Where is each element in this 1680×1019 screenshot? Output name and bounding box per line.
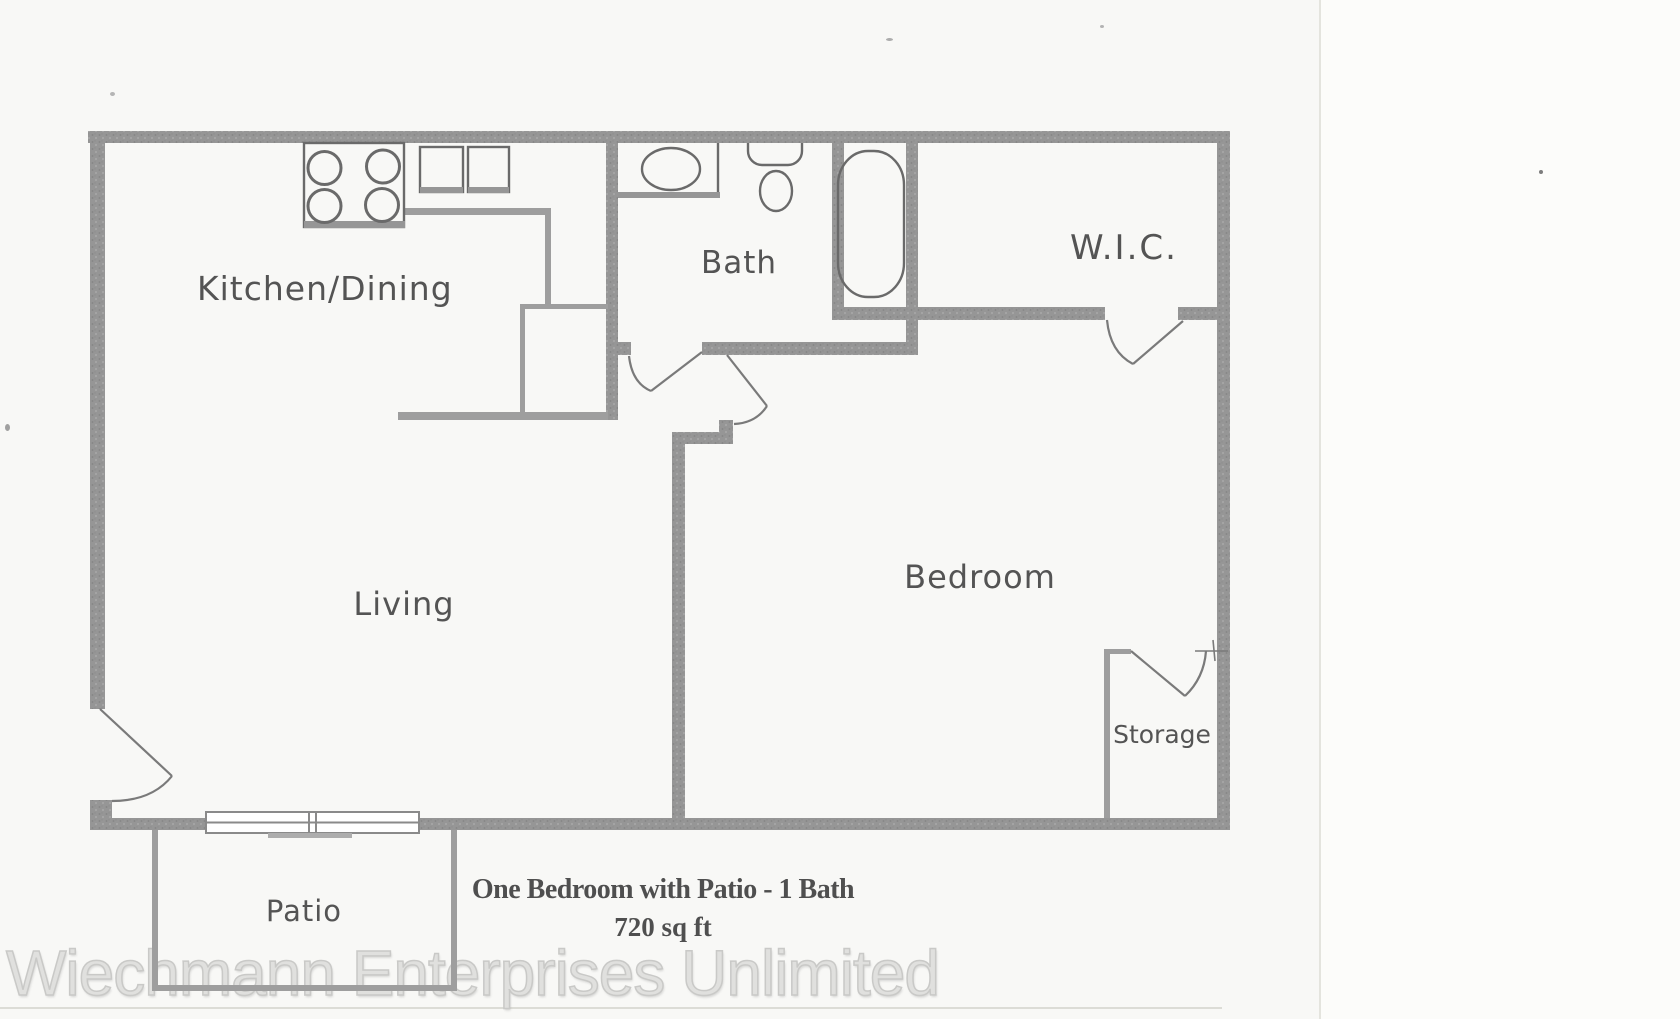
- wall-left: [90, 131, 105, 709]
- wall-bedroom-west: [672, 432, 685, 818]
- wall-storage-top: [1104, 649, 1131, 654]
- scanned-floor-plan-page: Wiechmann Enterprises Unlimited: [0, 0, 1680, 1019]
- kitchen-closet-top: [520, 304, 608, 309]
- floor-plan-drawing: [0, 0, 1680, 1019]
- patio-entry-door: [100, 709, 172, 801]
- wall-bedroom-door-nub: [719, 420, 733, 444]
- fixtures: [206, 143, 904, 838]
- wall-patio-south: [152, 985, 457, 991]
- room-label-living: Living: [352, 587, 456, 622]
- bedroom-door: [727, 355, 767, 424]
- wall-tub-east: [906, 143, 918, 355]
- stove-icon: [304, 143, 405, 228]
- kitchen-closet-side: [520, 304, 525, 416]
- wall-bath-south: [702, 342, 918, 355]
- plan-area: 720 sq ft: [433, 912, 893, 943]
- wic-door: [1107, 320, 1183, 364]
- wall-wic-south-left: [832, 307, 1105, 320]
- wall-top: [88, 131, 1230, 143]
- kitchen-counter-side: [545, 208, 551, 306]
- bath-door: [629, 352, 702, 391]
- wall-bath-west: [606, 143, 618, 420]
- room-label-kitchen-dining: Kitchen/Dining: [197, 271, 427, 307]
- plan-title: One Bedroom with Patio - 1 Bath: [433, 874, 893, 906]
- plan-title-block: One Bedroom with Patio - 1 Bath 720 sq f…: [433, 874, 893, 943]
- bathtub-icon: [838, 151, 904, 297]
- bathroom-sink-icon: [618, 143, 720, 198]
- wall-patio-west: [152, 830, 158, 990]
- kitchen-living-divider: [398, 412, 608, 420]
- kitchen-counter-top: [405, 208, 551, 215]
- storage-door: [1131, 640, 1228, 696]
- room-label-bath: Bath: [686, 246, 792, 280]
- kitchen-sink-icon: [420, 147, 509, 193]
- toilet-icon: [748, 143, 802, 211]
- wall-bottom-left: [90, 818, 208, 830]
- room-label-bedroom: Bedroom: [898, 560, 1062, 595]
- room-label-patio: Patio: [244, 896, 364, 928]
- room-label-storage: Storage: [1104, 721, 1220, 749]
- wall-wic-south-right: [1178, 307, 1217, 320]
- walls: [88, 131, 1230, 830]
- room-label-wic: W.I.C.: [1064, 230, 1184, 267]
- wall-bath-door-nub: [618, 342, 631, 355]
- wall-bottom-right: [419, 818, 1230, 830]
- sliding-door-icon: [206, 812, 419, 838]
